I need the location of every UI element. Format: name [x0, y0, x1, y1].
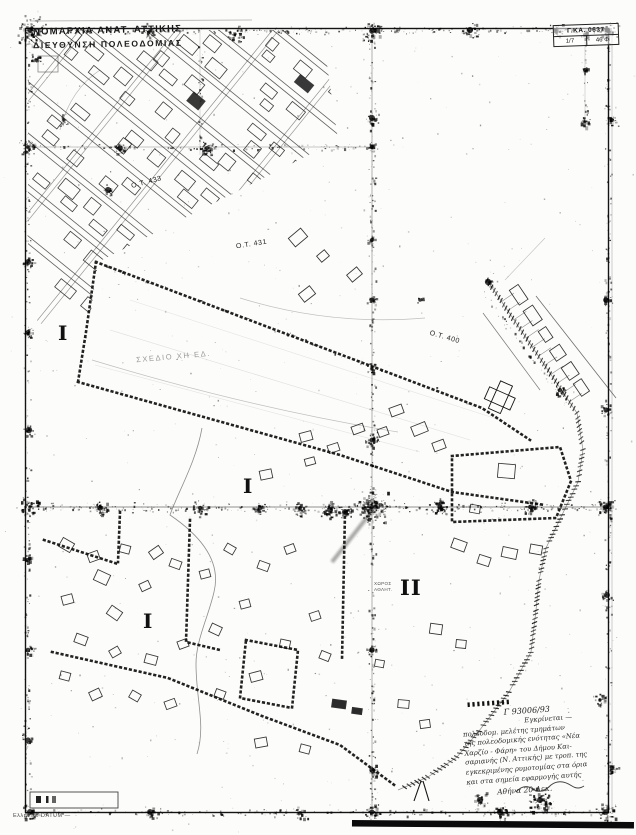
- datum-note: Ελληνικό DATUM —: [13, 813, 71, 819]
- zone-numeral-1b: I: [243, 474, 252, 498]
- approval-note: ▮▮▮▮▮▮▮▮▮ Γ 93006/93 Εγκρίνεται — πολεοδ…: [461, 690, 629, 798]
- registry-stamp-box: Γ.ΚΑ. 0637 1/7 46 Φ: [553, 23, 620, 47]
- zone-numeral-1a: I: [58, 321, 67, 345]
- street-grid: [0, 0, 527, 503]
- lambda-mark: [414, 781, 429, 801]
- scanned-planning-map: ΝΟΜΑΡΧΙΑ ΑΝΑΤ. ΑΤΤΙΚΗΣ ΔΙΕΥΘΥΝΣΗ ΠΟΛΕΟΔΟ…: [0, 0, 636, 835]
- zone-numeral-1c: I: [143, 609, 152, 633]
- stamp-date: 1/7: [554, 36, 586, 46]
- datum-box: [30, 792, 118, 808]
- stamp-sheet: 46 Φ: [586, 35, 619, 45]
- sports-area-line1: ΧΩΡΟΣ: [374, 581, 392, 587]
- sports-area-line2: ΑΘΛΗΤ.: [374, 587, 392, 593]
- map-border-frame: [26, 20, 613, 813]
- scattered-buildings: [58, 228, 542, 754]
- scale-bar: [352, 820, 634, 828]
- sports-area-label: ΧΩΡΟΣ ΑΘΛΗΤ.: [374, 581, 392, 592]
- zone-numeral-2: II: [400, 575, 422, 600]
- contour-and-parcel-lines: [60, 70, 545, 754]
